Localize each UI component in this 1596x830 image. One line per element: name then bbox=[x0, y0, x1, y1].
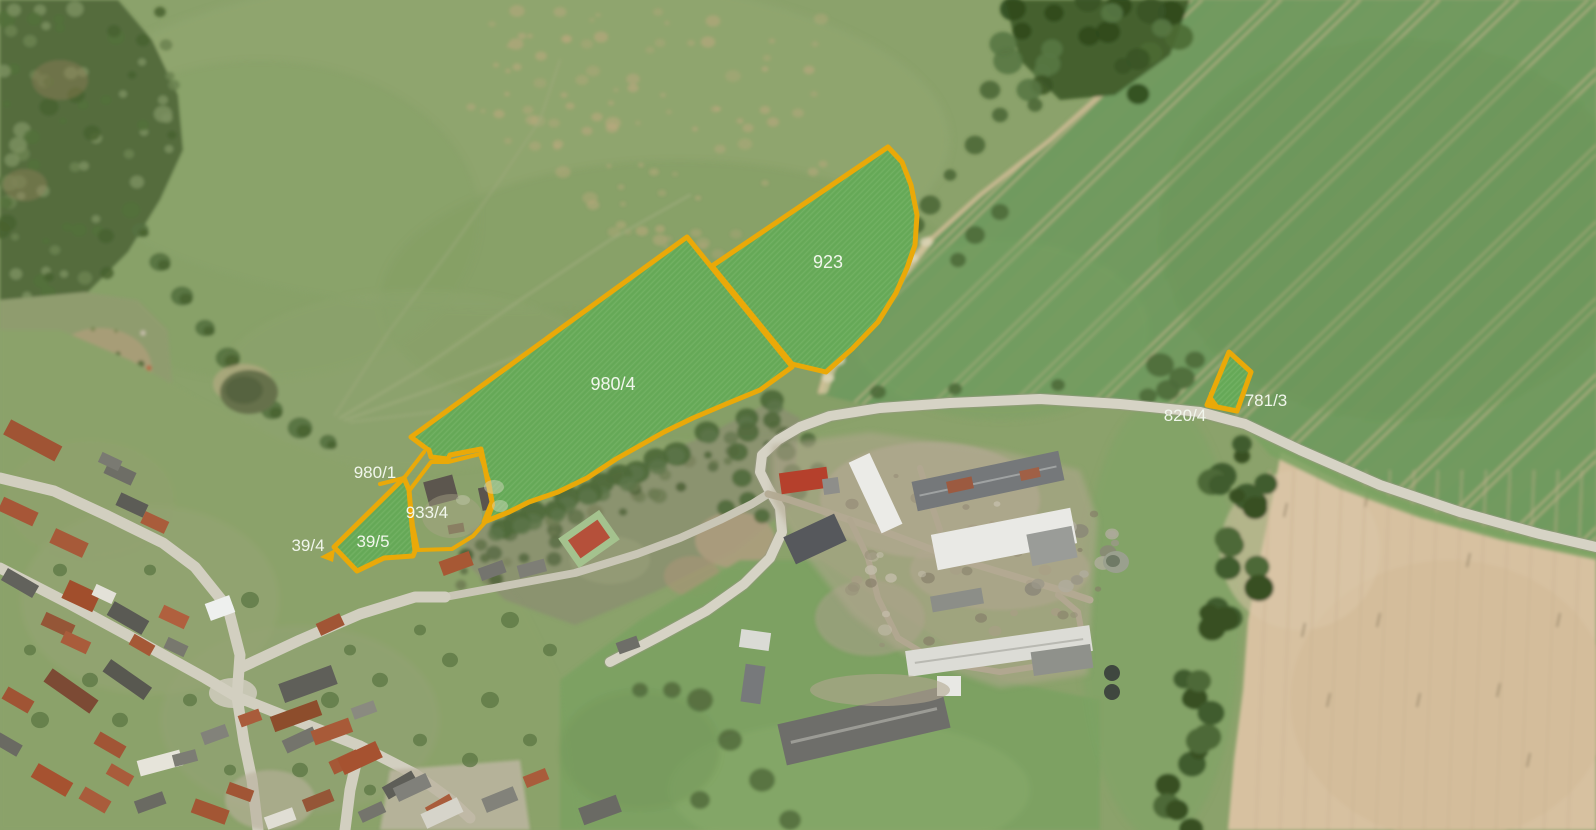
svg-text:820/4: 820/4 bbox=[1164, 406, 1207, 425]
svg-text:980/1: 980/1 bbox=[354, 463, 397, 482]
svg-text:980/4: 980/4 bbox=[590, 374, 635, 394]
svg-text:781/3: 781/3 bbox=[1245, 391, 1288, 410]
svg-text:39/4: 39/4 bbox=[291, 536, 324, 555]
svg-text:933/4: 933/4 bbox=[406, 503, 449, 522]
svg-text:39/5: 39/5 bbox=[356, 532, 389, 551]
svg-text:923: 923 bbox=[813, 252, 843, 272]
